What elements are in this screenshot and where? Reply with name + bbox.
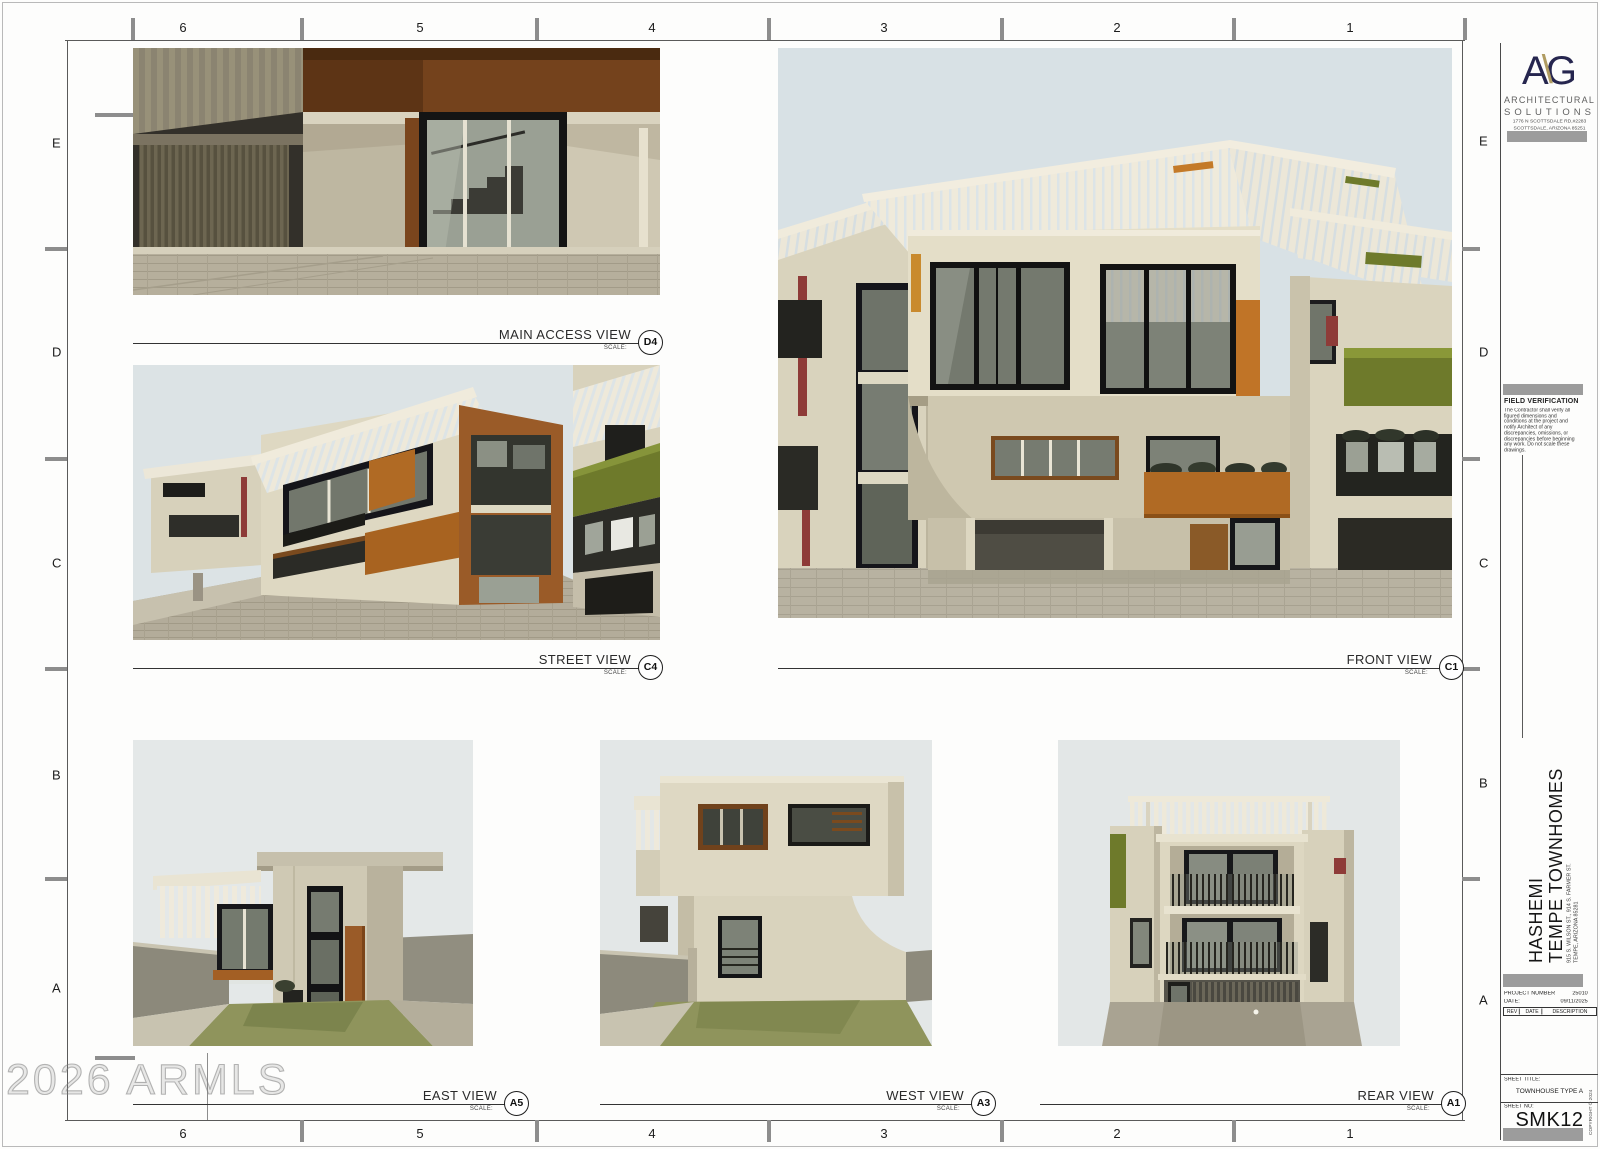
view-label-west: WEST VIEW SCALE: A3 <box>600 1088 1000 1116</box>
label-line <box>1040 1104 1442 1105</box>
grid-letter: B <box>52 768 61 783</box>
grid-letter: B <box>1479 776 1488 791</box>
ruler-tick <box>131 18 135 40</box>
title-block-rule <box>1501 1074 1598 1075</box>
project-address-line1: 915 S. WILSON ST., 914 S. FARMER ST. <box>1567 863 1572 963</box>
title-block-divider <box>1522 455 1523 738</box>
grid-letter: A <box>52 981 61 996</box>
date-value: 09/11/2025 <box>1560 999 1587 1005</box>
view-ref-circle: C4 <box>638 655 663 680</box>
rev-col: REV <box>1505 1009 1519 1015</box>
scale-label: SCALE: <box>1405 670 1428 676</box>
grid-number: 3 <box>880 1126 887 1141</box>
view-label-main-access: MAIN ACCESS VIEW SCALE: D4 <box>133 327 667 355</box>
view-name: EAST VIEW <box>423 1088 497 1103</box>
scale-label: SCALE: <box>470 1106 493 1112</box>
ruler-line <box>1462 40 1463 1120</box>
ruler-tick <box>1462 247 1480 251</box>
firm-name-line1: ARCHITECTURAL <box>1501 95 1598 105</box>
project-number-row: PROJECT NUMBER 25010 <box>1504 991 1588 997</box>
ruler-tick <box>535 18 539 40</box>
grid-number: 4 <box>648 20 655 35</box>
ruler-tick <box>45 247 67 251</box>
grid-number: 6 <box>179 1126 186 1141</box>
ruler-tick <box>45 457 67 461</box>
ruler-line <box>65 40 1465 41</box>
ruler-tick <box>300 1120 304 1142</box>
view-name: FRONT VIEW <box>1347 652 1432 667</box>
divider-bar <box>1507 131 1587 142</box>
view-name: STREET VIEW <box>539 652 631 667</box>
view-name: MAIN ACCESS VIEW <box>499 327 631 342</box>
armls-watermark: 2026 ARMLS <box>6 1056 289 1105</box>
logo-slash: \ <box>1542 48 1553 92</box>
view-label-rear: REAR VIEW SCALE: A1 <box>1040 1088 1470 1116</box>
rev-desc-col: DESCRIPTION <box>1548 1009 1592 1015</box>
east-view-image <box>133 740 473 1046</box>
field-verification-title: FIELD VERIFICATION <box>1504 398 1579 405</box>
grid-letter: E <box>52 136 61 151</box>
ruler-tick <box>767 1120 771 1142</box>
title-block: A\G ARCHITECTURAL SOLUTIONS 1776 N SCOTT… <box>1500 43 1598 1140</box>
project-name-line2: TEMPE TOWNHOMES <box>1546 768 1567 963</box>
view-label-street: STREET VIEW SCALE: C4 <box>133 652 667 680</box>
ruler-tick <box>1463 18 1467 40</box>
grid-letter: A <box>1479 993 1488 1008</box>
copyright-note: COPYRIGHT © 2024 <box>1589 1090 1594 1135</box>
rear-view-image <box>1058 740 1400 1046</box>
grid-number: 2 <box>1113 1126 1120 1141</box>
label-line <box>778 668 1440 669</box>
view-ref-circle: A5 <box>504 1091 529 1116</box>
view-name: WEST VIEW <box>886 1088 964 1103</box>
view-ref-circle: D4 <box>638 330 663 355</box>
grid-number: 3 <box>880 20 887 35</box>
ruler-tick <box>1462 457 1480 461</box>
ruler-tick <box>1232 1120 1236 1142</box>
main-access-view-image <box>133 48 660 295</box>
west-view-image <box>600 740 932 1046</box>
ruler-tick <box>1462 877 1480 881</box>
grid-number: 6 <box>179 20 186 35</box>
scale-label: SCALE: <box>604 670 627 676</box>
sheet-title-value: TOWNHOUSE TYPE A <box>1501 1088 1598 1095</box>
grid-number: 5 <box>416 1126 423 1141</box>
street-view-image <box>133 365 660 640</box>
grid-letter: C <box>1479 556 1488 571</box>
ruler-tick <box>300 18 304 40</box>
ruler-tick <box>1000 18 1004 40</box>
corner-mark <box>95 113 133 117</box>
ruler-tick <box>535 1120 539 1142</box>
sheet-title-label: SHEET TITLE: <box>1504 1077 1540 1083</box>
grid-letter: D <box>52 345 61 360</box>
grid-letter: E <box>1479 134 1488 149</box>
label-line <box>600 1104 972 1105</box>
firm-logo: A\G <box>1501 51 1598 91</box>
ruler-tick <box>1000 1120 1004 1142</box>
view-ref-circle: A3 <box>971 1091 996 1116</box>
divider-bar <box>1503 1128 1583 1141</box>
grid-letter: C <box>52 556 61 571</box>
project-address-line2: TEMPE, ARIZONA 85281 <box>1574 901 1579 963</box>
label-line <box>133 668 639 669</box>
project-name-line1: HASHEMI <box>1526 877 1547 963</box>
scale-label: SCALE: <box>604 345 627 351</box>
scale-label: SCALE: <box>937 1106 960 1112</box>
divider-bar <box>1503 974 1583 987</box>
view-ref-circle: C1 <box>1439 655 1464 680</box>
grid-number: 4 <box>648 1126 655 1141</box>
date-row: DATE: 09/11/2025 <box>1504 999 1588 1005</box>
date-label: DATE: <box>1504 999 1520 1005</box>
project-number-label: PROJECT NUMBER <box>1504 991 1555 997</box>
grid-number: 1 <box>1346 20 1353 35</box>
firm-name-line2: SOLUTIONS <box>1501 107 1598 118</box>
field-verification-body: The Contractor shall verify all figured … <box>1504 408 1581 454</box>
project-number-value: 25010 <box>1572 991 1587 997</box>
divider-bar <box>1503 384 1583 395</box>
rev-date-col: DATE <box>1523 1009 1543 1015</box>
title-block-rule <box>1501 1102 1598 1103</box>
scale-label: SCALE: <box>1407 1106 1430 1112</box>
grid-number: 2 <box>1113 20 1120 35</box>
grid-number: 5 <box>416 20 423 35</box>
grid-letter: D <box>1479 345 1488 360</box>
ruler-tick <box>1232 18 1236 40</box>
ruler-tick <box>767 18 771 40</box>
view-name: REAR VIEW <box>1357 1088 1434 1103</box>
firm-address-line1: 1776 N SCOTTSDALE RD,#2283 <box>1510 119 1590 124</box>
view-ref-circle: A1 <box>1441 1091 1466 1116</box>
ruler-line <box>67 40 68 1120</box>
ruler-tick <box>45 877 67 881</box>
grid-number: 1 <box>1346 1126 1353 1141</box>
ruler-line <box>65 1120 1465 1121</box>
view-label-front: FRONT VIEW SCALE: C1 <box>778 652 1468 680</box>
ruler-tick <box>45 667 67 671</box>
label-line <box>133 343 639 344</box>
revision-table-header: REV DATE DESCRIPTION <box>1503 1007 1597 1016</box>
front-view-image <box>778 48 1452 618</box>
architectural-sheet: 6 5 4 3 2 1 6 5 4 3 2 1 E D C B A <box>0 0 1600 1149</box>
